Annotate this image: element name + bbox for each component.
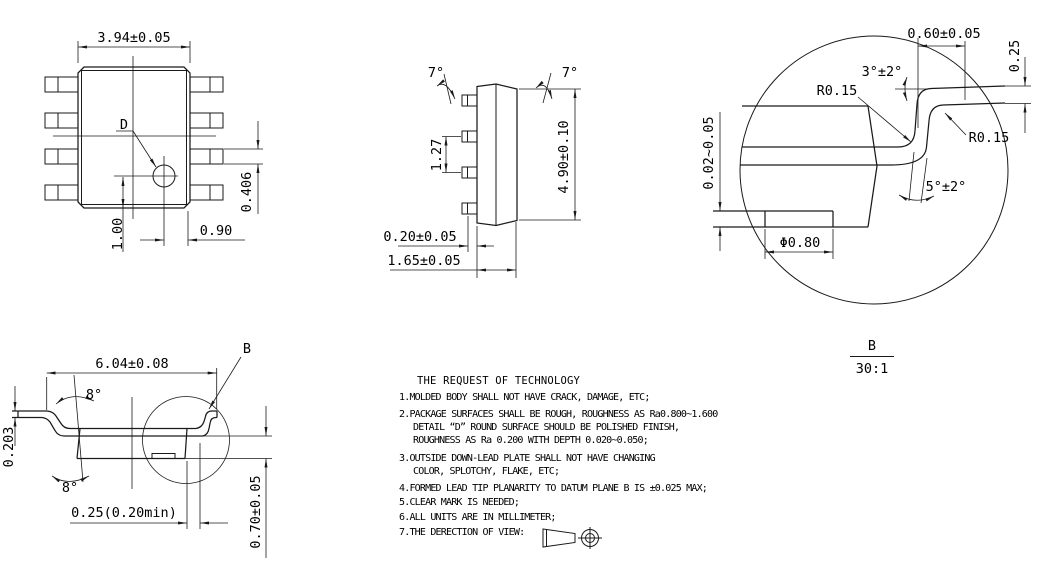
drawing-canvas: D 3.94±0.05 0.406 1.00 [0, 0, 1037, 570]
radius-right-callout: R0.15 [945, 113, 1009, 146]
dim-dimple-x: 0.90 [140, 211, 245, 246]
note-line-2c: ROUGHNESS AS Ra 0.200 WITH DEPTH 0.020~0… [413, 435, 648, 446]
detail-b-callout-text: B [243, 341, 251, 357]
dim-pad-width-text: Φ0.80 [780, 235, 821, 251]
angle-draft-left-text: 7° [428, 65, 444, 81]
dim-dimple-x-text: 0.90 [200, 223, 233, 239]
angle-lead-bottom-text: 8° [62, 480, 78, 496]
dim-lead-tip-text: 0.25(0.20min) [71, 505, 177, 521]
dim-foot-thickness-text: 0.25 [1007, 40, 1023, 73]
dim-lead-thickness-side-text: 0.20±0.05 [383, 229, 456, 245]
radius-left-callout: R0.15 [817, 83, 911, 142]
detail-b-title-scale: 30:1 [856, 361, 889, 377]
note-line-1: 1.MOLDED BODY SHALL NOT HAVE CRACK, DAMA… [399, 392, 650, 403]
angle-draft-left: 7° [428, 65, 455, 104]
dim-lead-tip: 0.25(0.20min) [70, 443, 228, 529]
angle-lead-face-text: 5°±2° [926, 179, 967, 195]
note-line-4: 4.FORMED LEAD TIP PLANARITY TO DATUM PLA… [399, 483, 707, 494]
dimple-callout: D [116, 117, 156, 167]
dim-body-width-text: 3.94±0.05 [97, 30, 170, 46]
top-view: D 3.94±0.05 0.406 1.00 [45, 30, 263, 252]
dim-dimple-y: 1.00 [110, 177, 126, 252]
angle-draft-right: 7° [536, 65, 578, 103]
detail-pad-bump [713, 211, 833, 227]
projection-target-icon [578, 527, 602, 549]
note-line-7: 7.THE DERECTION OF VIEW: [399, 527, 524, 538]
dim-pad-height: 0.02~0.05 [701, 112, 720, 251]
detail-b-title-letter: B [868, 338, 876, 354]
dim-foot-thickness: 0.25 [1005, 40, 1031, 133]
dim-standoff-text: 0.70±0.05 [248, 475, 264, 548]
dim-pad-height-text: 0.02~0.05 [701, 116, 717, 189]
dim-dimple-y-text: 1.00 [110, 218, 126, 251]
drawing-sheet: D 3.94±0.05 0.406 1.00 [0, 0, 1037, 570]
detail-b-title: B 30:1 [850, 338, 894, 377]
dim-foot-length: 0.60±0.05 [907, 26, 980, 128]
dim-body-length-text: 4.90±0.10 [556, 120, 572, 193]
note-line-2b: DETAIL “D” ROUND SURFACE SHOULD BE POLIS… [413, 422, 679, 433]
dim-pin-width: 0.406 [224, 121, 263, 214]
detail-b-view: 0.60±0.05 0.25 3°±2° R0.15 R0.15 [701, 26, 1031, 377]
dim-overall-width-text: 6.04±0.08 [95, 356, 168, 372]
pad-bump [152, 454, 175, 459]
dim-pin-pitch-text: 1.27 [429, 139, 445, 172]
dim-body-width: 3.94±0.05 [78, 30, 190, 63]
note-line-5: 5.CLEAR MARK IS NEEDED; [399, 497, 519, 508]
notes-title: THE REQUEST OF TECHNOLOGY [417, 375, 581, 387]
angle-draft-right-text: 7° [562, 65, 578, 81]
dim-lead-thickness-front: 0.203 [1, 386, 17, 467]
side-view: 1.27 7° 7° 4.90±0.10 0.20±0.05 [383, 65, 581, 278]
dim-pin-width-text: 0.406 [239, 172, 255, 213]
dim-body-length: 4.90±0.10 [519, 89, 581, 220]
notes-block: THE REQUEST OF TECHNOLOGY 1.MOLDED BODY … [399, 375, 718, 549]
dim-lead-thickness-front-text: 0.203 [1, 427, 17, 468]
angle-foot-text: 3°±2° [862, 64, 903, 80]
dim-foot-length-text: 0.60±0.05 [907, 26, 980, 42]
radius-right-text: R0.15 [969, 130, 1010, 146]
dim-pad-width: Φ0.80 [765, 229, 833, 259]
dim-body-thickness-text: 1.65±0.05 [387, 253, 460, 269]
note-line-2: 2.PACKAGE SURFACES SHALL BE ROUGH, ROUGH… [399, 409, 718, 420]
angle-lead-bottom: 8° [52, 476, 89, 496]
angle-lead-top-text: 8° [86, 387, 102, 403]
projection-cone-icon [543, 529, 575, 547]
front-view: B 6.04±0.08 8° 8° 0.203 [1, 341, 272, 558]
note-line-3: 3.OUTSIDE DOWN-LEAD PLATE SHALL NOT HAVE… [399, 453, 656, 464]
note-line-6: 6.ALL UNITS ARE IN MILLIMETER; [399, 512, 556, 523]
angle-lead-face: 5°±2° [899, 152, 966, 203]
top-view-right-pins [190, 77, 223, 200]
radius-left-text: R0.15 [817, 83, 858, 99]
top-view-left-pins [45, 77, 78, 200]
note-line-3b: COLOR, SPLOTCHY, FLAKE, ETC; [413, 466, 559, 477]
side-view-pins [462, 95, 477, 214]
dim-pin-pitch: 1.27 [429, 137, 461, 173]
detail-b-callout: B [209, 341, 251, 409]
